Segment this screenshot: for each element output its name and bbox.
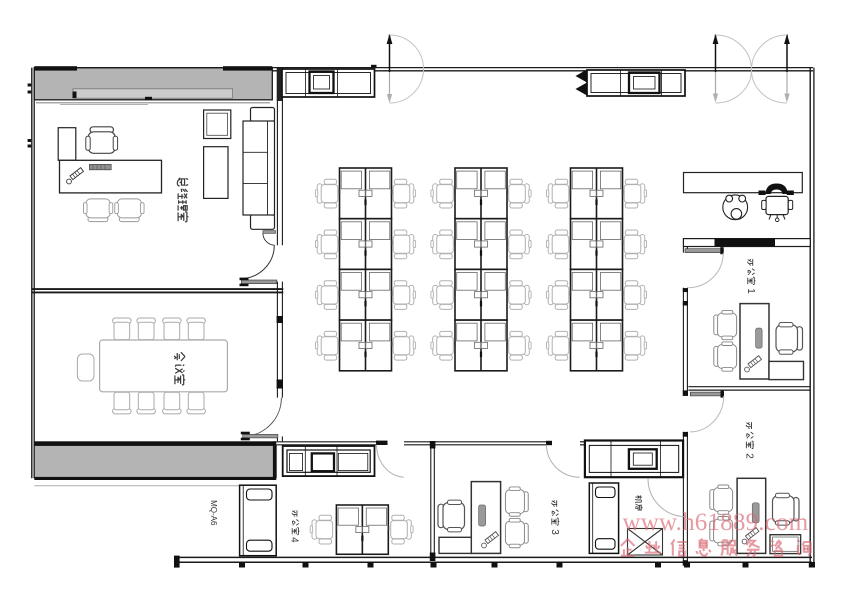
svg-text:MQ-A6: MQ-A6 [209,500,218,526]
svg-text:4: 4 [289,537,300,543]
svg-text:www.h61889.com: www.h61889.com [623,509,809,536]
svg-text:2: 2 [744,453,755,459]
svg-text:1: 1 [745,288,756,294]
svg-text:3: 3 [549,529,560,535]
